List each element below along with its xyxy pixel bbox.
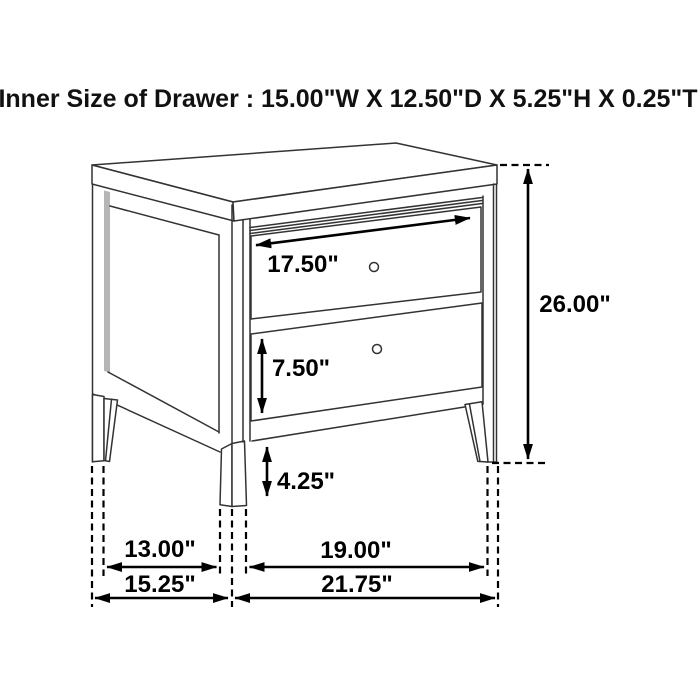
side-panel-shade xyxy=(104,191,110,373)
label-drawer-opening-width: 17.50" xyxy=(267,251,338,278)
drawer-bottom-knob xyxy=(373,345,382,354)
nightstand-drawing xyxy=(92,143,497,507)
label-side-outer-depth: 15.25" xyxy=(124,571,195,598)
drawer-top-knob xyxy=(370,263,379,272)
front-right-leg xyxy=(465,402,488,462)
label-lower-drawer-height: 7.50" xyxy=(272,355,330,382)
label-leg-height: 4.25" xyxy=(277,468,335,495)
label-overall-height: 26.00" xyxy=(539,291,610,318)
page-title: Inner Size of Drawer : 15.00"W X 12.50"D… xyxy=(0,85,698,113)
back-left-leg xyxy=(93,395,118,462)
label-side-inner-span: 13.00" xyxy=(124,536,195,563)
label-front-outer-width: 21.75" xyxy=(321,571,392,598)
label-front-inner-span: 19.00" xyxy=(320,537,391,564)
dimension-diagram-page: Inner Size of Drawer : 15.00"W X 12.50"D… xyxy=(0,0,700,700)
dimension-diagram-canvas: Inner Size of Drawer : 15.00"W X 12.50"D… xyxy=(0,0,700,700)
